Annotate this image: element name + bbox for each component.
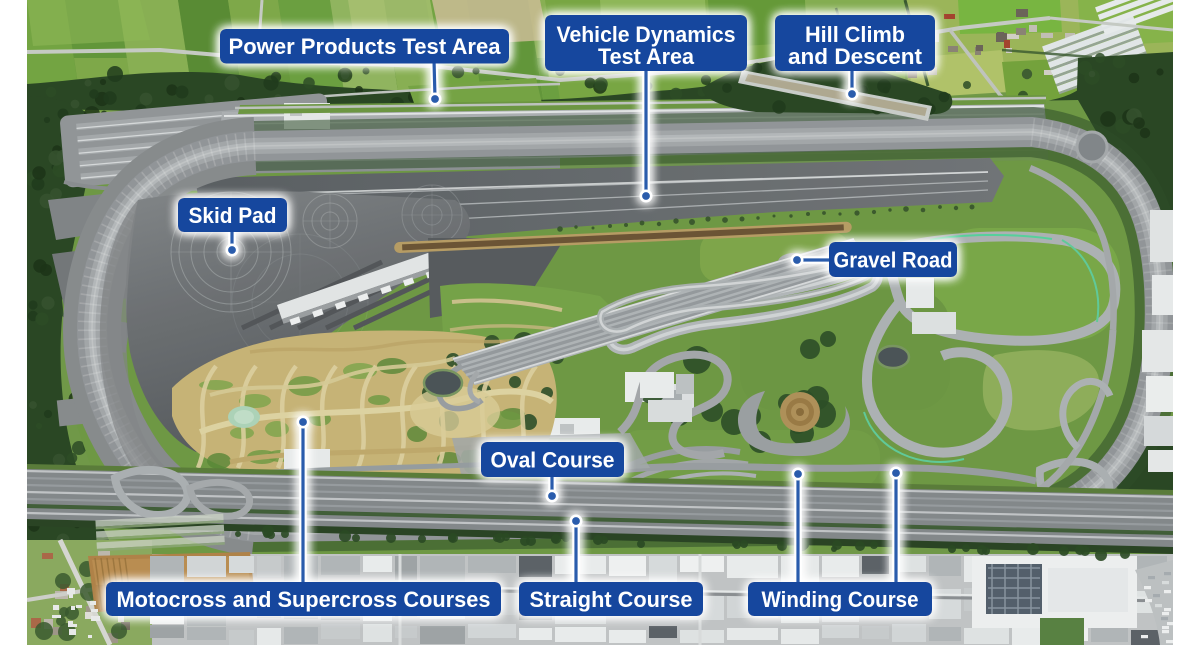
svg-text:Gravel Road: Gravel Road (834, 248, 953, 273)
svg-text:Winding Course: Winding Course (762, 587, 919, 612)
svg-text:and Descent: and Descent (788, 44, 923, 69)
svg-text:Test Area: Test Area (598, 44, 695, 69)
svg-text:Straight Course: Straight Course (530, 587, 693, 612)
svg-text:Motocross and Supercross Cours: Motocross and Supercross Courses (117, 587, 491, 612)
svg-text:Skid Pad: Skid Pad (189, 203, 277, 228)
svg-text:Power Products Test Area: Power Products Test Area (229, 34, 502, 59)
svg-text:Oval Course: Oval Course (491, 448, 615, 473)
